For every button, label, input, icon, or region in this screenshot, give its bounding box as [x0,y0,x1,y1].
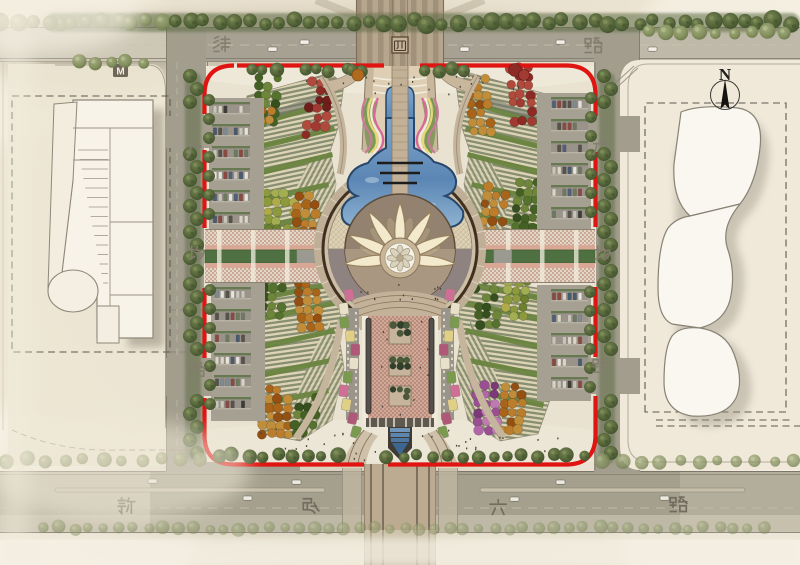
svg-text:M: M [116,67,124,78]
